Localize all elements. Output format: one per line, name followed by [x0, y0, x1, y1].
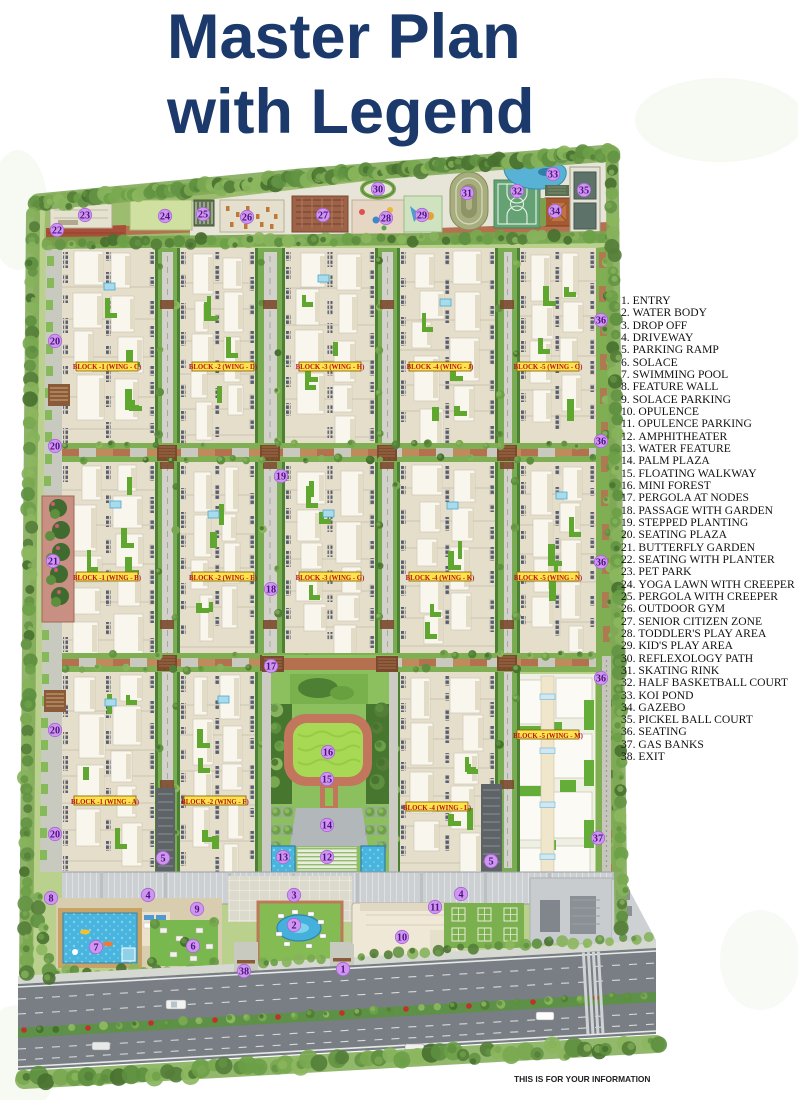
svg-text:BLOCK -1 (WING - C): BLOCK -1 (WING - C)	[73, 364, 141, 371]
svg-text:BLOCK -4 (WING - L): BLOCK -4 (WING - L)	[403, 805, 471, 812]
svg-text:13: 13	[278, 853, 288, 864]
svg-text:20: 20	[50, 726, 60, 737]
svg-text:9: 9	[194, 905, 199, 916]
svg-text:8: 8	[48, 894, 53, 905]
svg-text:BLOCK -2 (WING - E): BLOCK -2 (WING - E)	[189, 575, 257, 582]
svg-text:19: 19	[276, 472, 286, 483]
svg-text:11: 11	[430, 903, 440, 914]
svg-text:28: 28	[381, 214, 391, 225]
svg-text:5: 5	[160, 854, 165, 865]
svg-text:36: 36	[596, 674, 606, 685]
svg-text:35: 35	[579, 186, 589, 197]
svg-text:38: 38	[239, 967, 249, 978]
svg-text:BLOCK -5 (WING - N): BLOCK -5 (WING - N)	[514, 575, 582, 582]
svg-text:3: 3	[291, 891, 296, 902]
svg-text:BLOCK -5 (WING - M): BLOCK -5 (WING - M)	[513, 733, 583, 740]
svg-text:31: 31	[462, 189, 472, 200]
svg-text:BLOCK -4 (WING - K): BLOCK -4 (WING - K)	[406, 575, 475, 582]
svg-text:16: 16	[323, 748, 333, 759]
svg-text:26: 26	[242, 213, 252, 224]
svg-text:18: 18	[266, 585, 276, 596]
svg-text:21: 21	[48, 557, 58, 568]
svg-text:12: 12	[322, 853, 332, 864]
svg-text:36: 36	[596, 316, 606, 327]
svg-text:37: 37	[593, 834, 603, 845]
svg-text:22: 22	[52, 226, 62, 237]
svg-text:36: 36	[596, 558, 606, 569]
svg-text:2: 2	[291, 921, 296, 932]
svg-text:5: 5	[488, 857, 493, 868]
svg-text:BLOCK -3 (WING - G): BLOCK -3 (WING - G)	[296, 575, 365, 582]
svg-text:33: 33	[548, 170, 558, 181]
svg-text:BLOCK -1 (WING - A): BLOCK -1 (WING - A)	[71, 799, 139, 806]
svg-text:BLOCK -4 (WING - J): BLOCK -4 (WING - J)	[407, 364, 474, 371]
svg-text:4: 4	[145, 891, 150, 902]
svg-text:24: 24	[160, 212, 170, 223]
svg-text:27: 27	[318, 211, 328, 222]
svg-text:34: 34	[550, 207, 560, 218]
svg-text:17: 17	[266, 662, 276, 673]
svg-text:BLOCK -2 (WING - D): BLOCK -2 (WING - D)	[189, 364, 257, 371]
svg-text:30: 30	[373, 185, 383, 196]
svg-text:20: 20	[50, 442, 60, 453]
svg-text:10: 10	[397, 933, 407, 944]
svg-text:14: 14	[322, 821, 332, 832]
svg-text:4: 4	[458, 890, 463, 901]
svg-text:20: 20	[50, 830, 60, 841]
svg-text:1: 1	[340, 965, 345, 976]
svg-text:25: 25	[198, 210, 208, 221]
svg-text:BLOCK -3 (WING - H): BLOCK -3 (WING - H)	[296, 364, 365, 371]
svg-text:23: 23	[80, 211, 90, 222]
svg-text:BLOCK -2 (WING - F): BLOCK -2 (WING - F)	[181, 799, 249, 806]
svg-text:32: 32	[512, 187, 522, 198]
svg-text:7: 7	[93, 943, 98, 954]
svg-text:BLOCK -5 (WING - O): BLOCK -5 (WING - O)	[514, 364, 583, 371]
svg-text:15: 15	[322, 775, 332, 786]
svg-text:6: 6	[190, 942, 195, 953]
svg-text:36: 36	[596, 437, 606, 448]
svg-text:29: 29	[417, 211, 427, 222]
svg-text:BLOCK -1 (WING - B): BLOCK -1 (WING - B)	[73, 575, 141, 582]
svg-text:20: 20	[50, 337, 60, 348]
